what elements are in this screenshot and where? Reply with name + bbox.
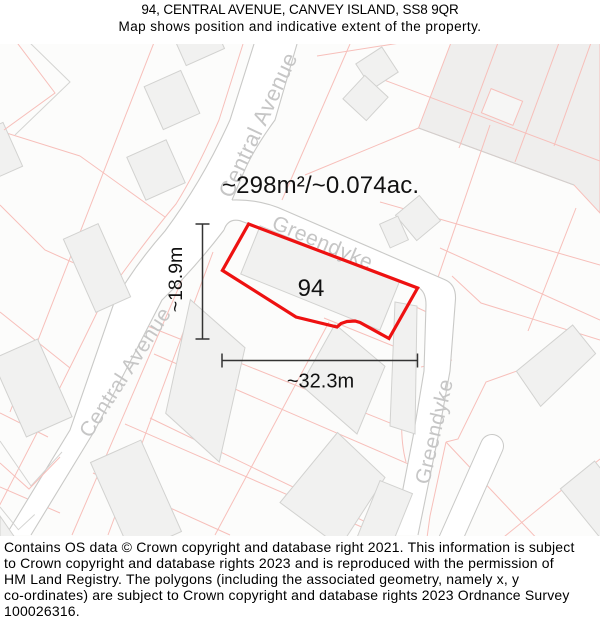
svg-text:~298m²/~0.074ac.: ~298m²/~0.074ac. bbox=[222, 172, 419, 199]
svg-text:~32.3m: ~32.3m bbox=[287, 371, 354, 393]
svg-text:94: 94 bbox=[298, 275, 325, 302]
svg-text:~18.9m: ~18.9m bbox=[165, 247, 187, 313]
